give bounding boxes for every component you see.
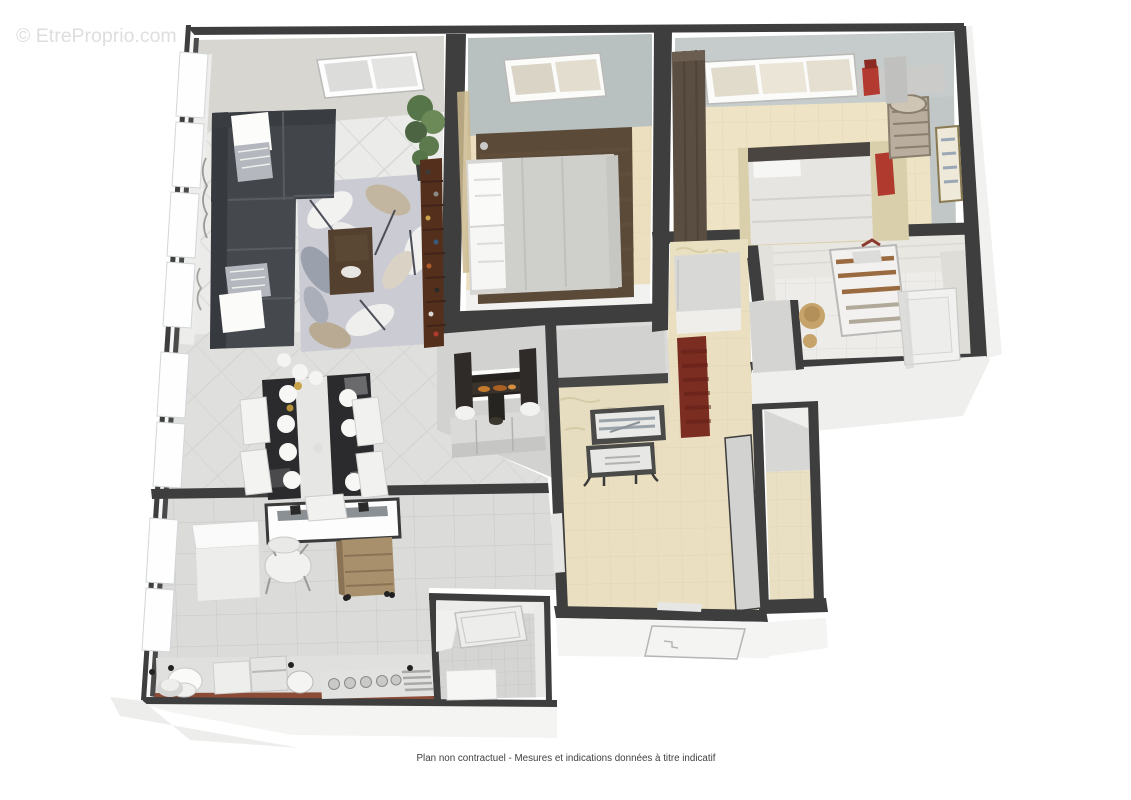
svg-text:© EtreProprio.com: © EtreProprio.com xyxy=(16,25,177,47)
svg-text:Plan non contractuel - Mesures: Plan non contractuel - Mesures et indica… xyxy=(417,753,716,764)
